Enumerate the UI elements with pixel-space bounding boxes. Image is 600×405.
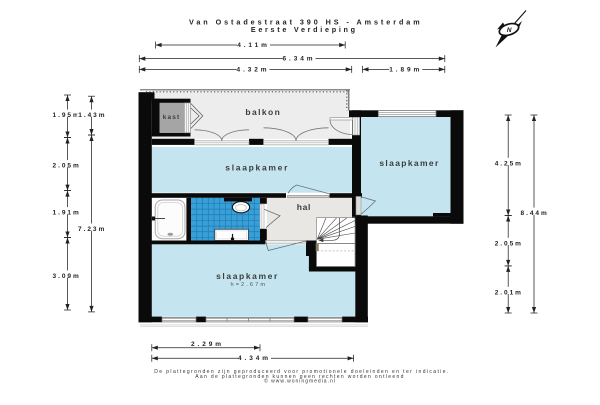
svg-text:1.89m: 1.89m <box>389 66 422 73</box>
svg-text:slaapkamer: slaapkamer <box>225 163 289 173</box>
svg-text:h=2.67m: h=2.67m <box>230 282 267 288</box>
svg-text:1.91m: 1.91m <box>53 210 81 217</box>
svg-text:hal: hal <box>297 202 311 212</box>
svg-text:4.32m: 4.32m <box>237 66 270 73</box>
svg-text:Eerste Verdieping: Eerste Verdieping <box>251 25 358 34</box>
svg-text:4.11m: 4.11m <box>237 42 270 49</box>
svg-text:N: N <box>507 27 512 34</box>
svg-text:8.44m: 8.44m <box>521 210 549 217</box>
svg-text:6.34m: 6.34m <box>283 56 316 63</box>
svg-text:7.23m: 7.23m <box>78 226 106 233</box>
svg-text:4.25m: 4.25m <box>495 160 523 167</box>
svg-text:balkon: balkon <box>245 107 281 117</box>
svg-text:1.43m: 1.43m <box>78 112 106 119</box>
svg-text:2.05m: 2.05m <box>53 163 81 170</box>
svg-text:slaapkamer: slaapkamer <box>379 158 439 168</box>
svg-text:1.95m: 1.95m <box>53 112 81 119</box>
svg-text:4.34m: 4.34m <box>238 355 271 362</box>
svg-text:2.01m: 2.01m <box>495 289 523 296</box>
svg-text:3.09m: 3.09m <box>53 273 81 280</box>
svg-text:2.05m: 2.05m <box>495 240 523 247</box>
svg-text:kast: kast <box>163 114 181 121</box>
svg-text:2.29m: 2.29m <box>191 341 224 348</box>
svg-text:© www.woningmedia.nl: © www.woningmedia.nl <box>264 378 336 385</box>
svg-text:slaapkamer: slaapkamer <box>216 271 279 281</box>
